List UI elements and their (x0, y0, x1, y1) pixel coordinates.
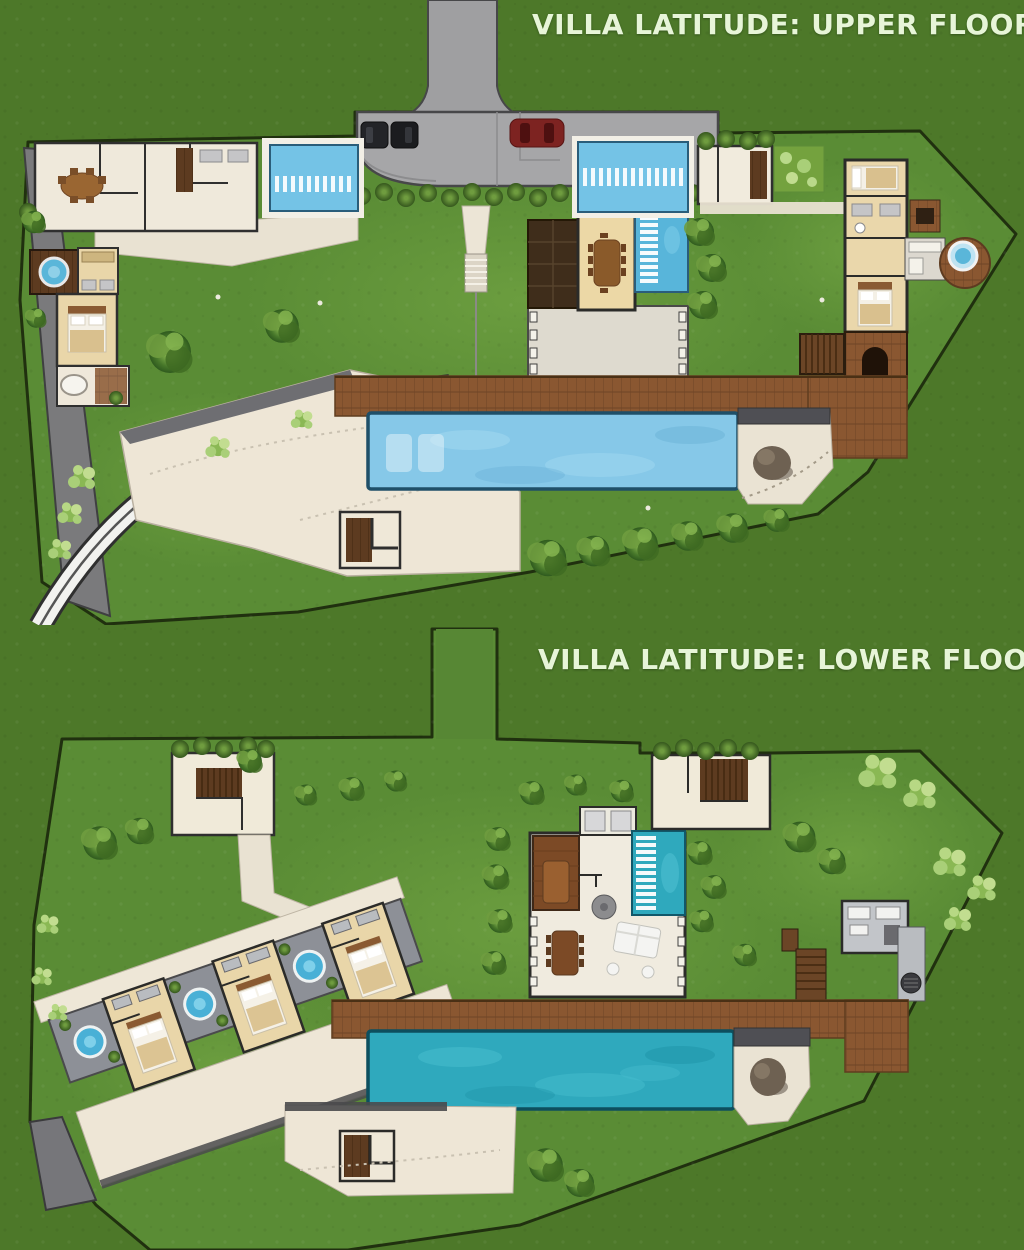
round-dining-table (61, 173, 103, 199)
side-stairs (800, 334, 844, 374)
water-stair-feature (632, 831, 685, 915)
living-pavilion (530, 807, 685, 997)
bed (68, 306, 106, 352)
car-red (510, 119, 564, 147)
dining-table (552, 931, 578, 975)
upper-floor-plan: VILLA LATITUDE: UPPER FLOOR (0, 0, 1024, 625)
upper-stair-room (652, 739, 770, 829)
infinity-pool (368, 413, 738, 489)
dining-pavilion (578, 214, 635, 310)
entry-corridor (436, 629, 493, 739)
bed (858, 282, 892, 326)
infinity-pool (368, 1031, 734, 1109)
lap-pool-right (572, 136, 694, 218)
lower-floor-drawing (0, 625, 1024, 1250)
floor-plan-sheet: VILLA LATITUDE: UPPER FLOOR (0, 0, 1024, 1250)
terrace-stairs (340, 512, 400, 568)
koi-pond-stepping-stones (635, 212, 688, 292)
car-dark-2 (391, 122, 418, 148)
lap-pool-left (262, 138, 364, 218)
upper-floor-drawing (0, 0, 1024, 625)
outdoor-bathtub (57, 366, 129, 406)
car-dark-1 (361, 122, 388, 148)
colonnade-terrace (528, 306, 688, 378)
outdoor-jacuzzi (940, 238, 990, 288)
media-room (533, 836, 579, 910)
dining-table (594, 240, 620, 286)
lower-floor-title: VILLA LATITUDE: LOWER FLOOR (538, 643, 1024, 676)
submerged-loungers (386, 434, 412, 472)
lower-floor-plan: VILLA LATITUDE: LOWER FLOOR (0, 625, 1024, 1250)
terrace-stairs (340, 1131, 394, 1181)
upper-floor-title: VILLA LATITUDE: UPPER FLOOR (532, 8, 1024, 41)
interior-stairs (176, 148, 193, 192)
